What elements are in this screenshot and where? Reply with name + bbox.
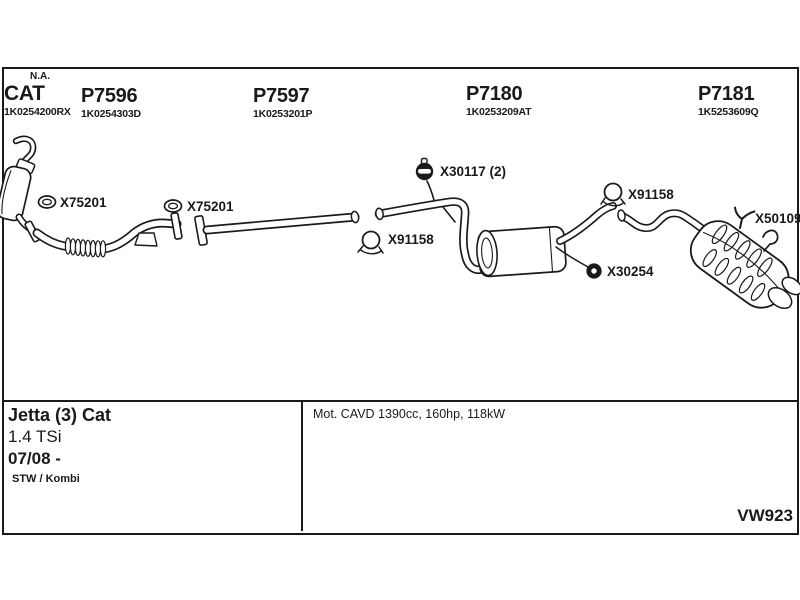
part-label-x50109: X50109 (755, 211, 800, 226)
header-cat: N.A. CAT 1K0254200RX (4, 72, 71, 118)
diagram-code: VW923 (737, 506, 793, 526)
vehicle-info-cell: Jetta (3) Cat 1.4 TSi 07/08 - STW / Komb… (8, 404, 296, 485)
cat-part-number: 1K0254200RX (4, 107, 71, 118)
x30117-leader-1 (427, 181, 434, 200)
engine-details: Mot. CAVD 1390cc, 160hp, 118kW (313, 407, 505, 421)
p7596-title: P7596 (81, 86, 141, 106)
cat-title: CAT (4, 83, 71, 104)
gasket-icon-front (39, 196, 56, 208)
x30117-leader-2 (443, 207, 455, 222)
hook-icon (735, 208, 755, 229)
part-label-x91158-rear: X91158 (628, 187, 674, 202)
p7596-part-number: 1K0254303D (81, 109, 141, 120)
header-p7180: P7180 1K0253209AT (466, 84, 531, 118)
part-label-x30254: X30254 (607, 264, 654, 279)
p7597-part-number: 1K0253201P (253, 109, 312, 120)
p7181-part-number: 1K5253609Q (698, 107, 758, 118)
cat-flag: N.A. (30, 72, 71, 82)
table-vertical-divider (301, 400, 303, 531)
vehicle-model: Jetta (3) Cat (8, 404, 296, 426)
p7181-title: P7181 (698, 84, 758, 104)
mid-pipe-drawing (195, 211, 360, 246)
gasket-icon-mid (165, 200, 182, 212)
vehicle-engine: 1.4 TSi (8, 426, 296, 448)
vehicle-date-range: 07/08 - (8, 448, 296, 470)
header-p7597: P7597 1K0253201P (253, 86, 312, 120)
part-label-x30117: X30117 (2) (440, 164, 506, 179)
catalytic-converter-drawing (0, 139, 41, 243)
table-horizontal-divider (2, 400, 797, 402)
part-label-x91158-mid: X91158 (388, 232, 434, 247)
header-p7181: P7181 1K5253609Q (698, 84, 758, 118)
p7180-part-number: 1K0253209AT (466, 107, 531, 118)
part-label-x75201-mid: X75201 (187, 199, 234, 214)
p7597-title: P7597 (253, 86, 312, 106)
pipe-bracket (135, 233, 157, 246)
exhaust-parts-diagram-page: N.A. CAT 1K0254200RX P7596 1K0254303D P7… (0, 0, 800, 600)
front-pipe-drawing (37, 213, 182, 257)
tail-pipe-drawing (617, 209, 704, 230)
vehicle-body-style: STW / Kombi (12, 473, 296, 485)
p7180-title: P7180 (466, 84, 531, 104)
clamp-icon-mid (358, 232, 383, 254)
header-p7596: P7596 1K0254303D (81, 86, 141, 120)
part-label-x75201-front: X75201 (60, 195, 107, 210)
muffler-hook-bracket (763, 230, 778, 251)
